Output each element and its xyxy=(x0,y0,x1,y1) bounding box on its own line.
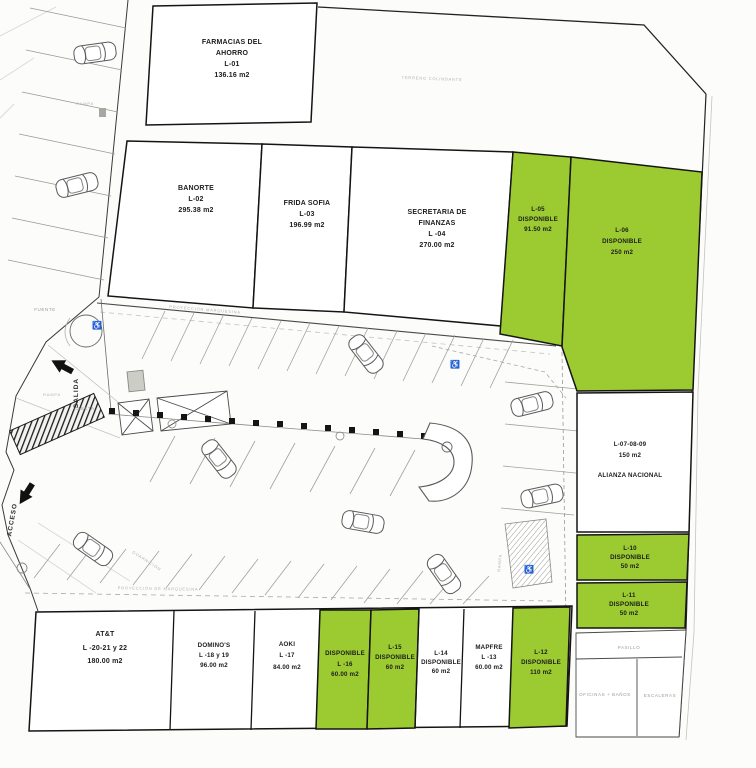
hatched-enclosure xyxy=(10,393,105,454)
lot-l2022-label: 180.00 m2 xyxy=(87,658,122,665)
canopy-columns xyxy=(109,408,427,439)
lot-l12-label: L-12 xyxy=(534,649,548,656)
lot-l04-label: 270.00 m2 xyxy=(419,242,454,249)
car-icon xyxy=(520,483,565,509)
hallway-label: PASILLO xyxy=(618,645,641,650)
lot-l03-label: 196.99 m2 xyxy=(289,222,324,229)
site-plan-drawing: TERRENO COLINDANTE FARMACIAS DEL AHORRO … xyxy=(0,0,756,768)
lot-l02-shape xyxy=(108,141,262,308)
lot-l05-label: 91.50 m2 xyxy=(524,226,552,233)
car-icon xyxy=(73,41,117,65)
lot-l03-label: FRIDA SOFIA xyxy=(284,200,331,207)
lot-l070809-label: ALIANZA NACIONAL xyxy=(598,472,663,479)
lot-l16-shape xyxy=(316,610,371,729)
ramp-marker xyxy=(99,108,106,117)
stairs-label: ESCALERAS xyxy=(644,693,676,698)
lot-l12-label: DISPONIBLE xyxy=(521,659,561,666)
lot-l15-label: DISPONIBLE xyxy=(375,654,415,661)
lot-l13-label: L -13 xyxy=(481,654,497,661)
lot-l13-label: 60.00 m2 xyxy=(475,664,503,671)
lot-l06-label: 250 m2 xyxy=(611,249,634,256)
lot-l2022-label: L -20-21 y 22 xyxy=(83,645,128,652)
lot-l12-shape xyxy=(509,607,570,728)
car-icon xyxy=(425,552,464,597)
ramp-mid-label: RAMPA xyxy=(43,392,61,397)
wheelchair-icon: ♿ xyxy=(92,320,102,330)
lot-l03-label: L-03 xyxy=(299,211,314,218)
access-label: ACCESO xyxy=(6,502,19,537)
lot-l02-label: L-02 xyxy=(188,196,203,203)
site-plan-page: TERRENO COLINDANTE FARMACIAS DEL AHORRO … xyxy=(0,0,756,768)
lot-l15-label: 60 m2 xyxy=(386,664,405,671)
wheelchair-icon: ♿ xyxy=(450,359,460,369)
lot-l05-label: L-05 xyxy=(531,206,545,213)
lot-l02-label: BANORTE xyxy=(178,185,214,192)
car-icon xyxy=(199,437,239,481)
lot-l01-label: 136.16 m2 xyxy=(214,72,249,79)
lot-l17-label: L -17 xyxy=(279,652,295,659)
turnaround-hook xyxy=(419,423,472,501)
lot-l06-label: DISPONIBLE xyxy=(602,238,642,245)
lot-l01-label: AHORRO xyxy=(216,50,249,57)
lot-l070809-label: 150 m2 xyxy=(619,452,642,459)
lot-l15-label: L-15 xyxy=(388,644,402,651)
lot-l1819-label: L -18 y 19 xyxy=(199,652,229,659)
lot-l10-label: L-10 xyxy=(623,545,637,552)
mid-stall-lines xyxy=(150,436,415,496)
car-icon xyxy=(341,509,385,534)
lot-l1819-label: 96.00 m2 xyxy=(200,662,228,669)
lot-l16-label: DISPONIBLE xyxy=(325,650,365,657)
exit-label: SALIDA xyxy=(73,378,80,408)
lot-l14-label: L-14 xyxy=(434,650,448,657)
ramp-hatch xyxy=(505,519,552,588)
lot-l070809-shape xyxy=(577,392,693,532)
exit-arrow-icon xyxy=(48,354,76,378)
fountain xyxy=(65,315,102,347)
car-icon xyxy=(54,171,99,199)
lot-l17-label: 84.00 m2 xyxy=(273,664,301,671)
wheelchair-icon: ♿ xyxy=(524,564,534,574)
lot-l06-shape xyxy=(562,157,702,391)
caseta-structures xyxy=(10,370,231,454)
parking-area xyxy=(0,297,578,624)
lot-l04-label: SECRETARIA DE xyxy=(408,209,467,216)
lot-l11-label: 50 m2 xyxy=(620,610,639,617)
car-icon xyxy=(509,390,554,418)
lot-l11-label: L-11 xyxy=(622,592,636,599)
ramp-right-label: RAMPA xyxy=(496,554,503,572)
lot-l14-label: DISPONIBLE xyxy=(421,659,461,666)
car-icon xyxy=(346,332,386,376)
ramp-street-label: RAMPA xyxy=(76,101,94,106)
lot-l05-shape xyxy=(500,152,571,346)
lot-l04-label: L -04 xyxy=(428,231,445,238)
lot-l17-label: AOKI xyxy=(279,641,295,648)
lot-l01-label: FARMACIAS DEL xyxy=(202,39,263,46)
lot-l01-label: L-01 xyxy=(224,61,239,68)
lot-l06-label: L-06 xyxy=(615,227,629,234)
lot-l12-label: 110 m2 xyxy=(530,669,552,676)
terrain-label: TERRENO COLINDANTE xyxy=(402,75,463,82)
lot-l05-label: DISPONIBLE xyxy=(518,216,558,223)
car-icon xyxy=(71,530,116,569)
offices-label: OFICINAS + BAÑOS xyxy=(579,691,631,697)
lot-l16-label: L -16 xyxy=(337,661,353,668)
lot-l13-label: MAPFRE xyxy=(475,644,502,651)
lot-l11-label: DISPONIBLE xyxy=(609,601,649,608)
lot-l14-label: 60 m2 xyxy=(432,668,451,675)
street-margin-lines xyxy=(0,7,130,593)
lot-l2022-label: AT&T xyxy=(96,631,115,638)
lot-l1819-label: DOMINO'S xyxy=(198,642,231,649)
lot-l10-label: 50 m2 xyxy=(621,563,640,570)
lot-l04-label: FINANZAS xyxy=(419,220,456,227)
lot-l10-label: DISPONIBLE xyxy=(610,554,650,561)
lot-l16-label: 60.00 m2 xyxy=(331,671,359,678)
lot-l02-label: 295.38 m2 xyxy=(178,207,213,214)
marquee-bottom-label: PROYECCIÓN DE MARQUESINA xyxy=(118,585,199,591)
upper-lots xyxy=(108,3,702,628)
fountain-label: FUENTE xyxy=(34,307,56,312)
lot-l070809-label: L-07-08-09 xyxy=(614,441,647,448)
